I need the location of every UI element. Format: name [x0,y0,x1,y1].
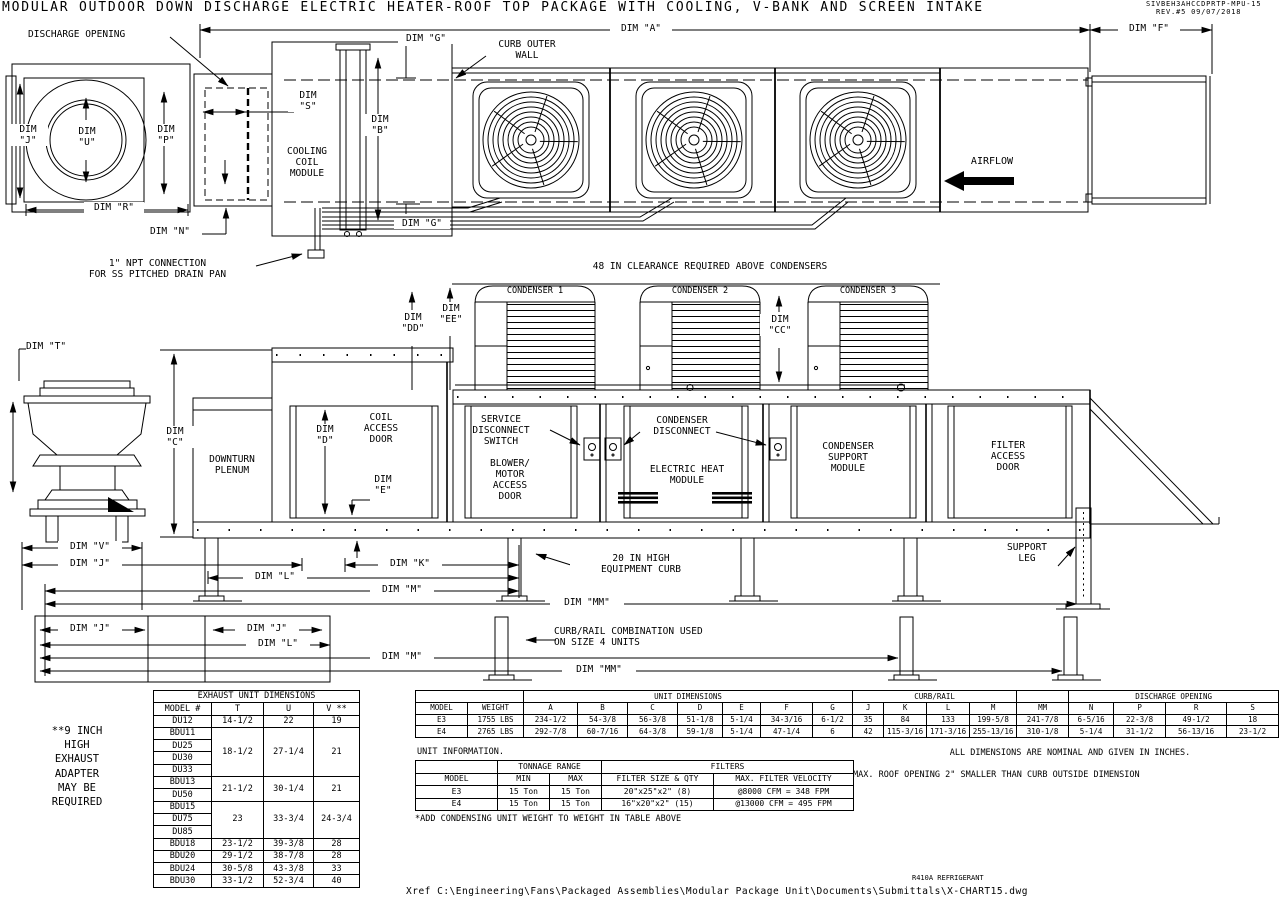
nominal-dimensions-note: ALL DIMENSIONS ARE NOMINAL AND GIVEN IN … [900,749,1240,759]
condenser-fan-icon [636,82,752,198]
exhaust-unit-dimensions-table: EXHAUST UNIT DIMENSIONSMODEL #TUV **DU12… [153,690,360,888]
dim-a-label: DIM "A" [610,23,672,34]
clearance-note: 48 IN CLEARANCE REQUIRED ABOVE CONDENSER… [530,261,890,272]
dim-k-label: DIM "K" [378,558,442,569]
dim-r-label: DIM "R" [84,202,144,213]
dim-g-bottom-label: DIM "G" [394,218,450,229]
condenser-2-label: CONDENSER 2 [640,287,760,297]
equipment-curb-note: 20 IN HIGH EQUIPMENT CURB [570,553,712,575]
add-weight-note: *ADD CONDENSING UNIT WEIGHT TO WEIGHT IN… [415,815,745,825]
exhaust-adapter-note: **9 INCH HIGH EXHAUST ADAPTER MAY BE REQ… [8,724,146,809]
dim-l-row1-label: DIM "L" [243,571,307,582]
dim-t-label: DIM "T" [26,341,90,352]
cad-submittal-sheet: MODULAR OUTDOOR DOWN DISCHARGE ELECTRIC … [0,0,1280,898]
downturn-plenum-label: DOWNTURN PLENUM [192,454,272,476]
dim-j-row1-label: DIM "J" [58,558,122,569]
curb-outer-wall-label: CURB OUTER WALL [482,39,572,61]
condenser-fan-icon [473,82,589,198]
condenser-2-shape [640,286,760,390]
dim-d-label: DIM "D" [306,424,344,446]
dim-m-row2-label: DIM "M" [370,651,434,662]
dim-mm-row2-label: DIM "MM" [562,664,636,675]
blower-motor-door-label: BLOWER/ MOTOR ACCESS DOOR [466,458,554,502]
refrigerant-label: R410A REFRIGERANT [912,874,1042,882]
airflow-arrow-icon [944,171,1014,191]
dim-m-row1-label: DIM "M" [370,584,434,595]
dim-cc-label: DIM "CC" [760,314,800,336]
support-leg-label: SUPPORT LEG [994,542,1060,564]
discharge-opening-label: DISCHARGE OPENING [28,29,180,40]
dim-ee-label: DIM "EE" [432,303,470,325]
condenser-1-shape [475,286,595,390]
doc-number: SIVBEH3AHCCDPRTP-MPU-15 [1146,0,1278,8]
dim-dd-label: DIM "DD" [394,312,432,334]
curb-rail-note: CURB/RAIL COMBINATION USED ON SIZE 4 UNI… [554,626,766,648]
tonnage-filters-table: TONNAGE RANGEFILTERSMODELMINMAXFILTER SI… [415,760,854,811]
condenser-disconnect-label: CONDENSER DISCONNECT [628,415,736,437]
dim-n-label: DIM "N" [140,226,200,237]
dim-f-label: DIM "F" [1118,23,1180,34]
filter-access-door-label: FILTER ACCESS DOOR [970,440,1046,473]
condenser-fan-icon [800,82,916,198]
condenser-support-module-label: CONDENSER SUPPORT MODULE [792,441,904,474]
condenser-elevation [412,284,940,391]
revision: REV.#5 09/07/2018 [1156,8,1280,16]
condenser-3-shape [808,286,928,390]
dimension-rows [22,541,1101,682]
cooling-coil-module-label: COOLING COIL MODULE [275,146,339,179]
dim-mm-row1-label: DIM "MM" [550,597,624,608]
electric-heat-module-label: ELECTRIC HEAT MODULE [620,464,754,486]
dim-j-topview-label: DIM "J" [8,124,48,146]
npt-connection-note: 1" NPT CONNECTION FOR SS PITCHED DRAIN P… [50,258,265,280]
dim-b-label: DIM "B" [362,114,398,136]
coil-access-door-label: COIL ACCESS DOOR [346,412,416,445]
unit-dimensions-table: UNIT DIMENSIONSCURB/RAILDISCHARGE OPENIN… [415,690,1279,738]
page-title: MODULAR OUTDOOR DOWN DISCHARGE ELECTRIC … [2,0,1152,15]
dim-v-label: DIM "V" [58,541,122,552]
airflow-label: AIRFLOW [944,156,1040,168]
dim-s-label: DIM "S" [288,90,328,112]
dim-p-label: DIM "P" [148,124,184,146]
unit-information-label: UNIT INFORMATION. [417,748,557,758]
dim-l-row2-label: DIM "L" [246,638,310,649]
dim-j-row2a-label: DIM "J" [58,623,122,634]
dim-j-row2b-label: DIM "J" [235,623,299,634]
dim-c-label: DIM "C" [156,426,194,448]
dim-g-top-label: DIM "G" [398,33,454,44]
condenser-1-label: CONDENSER 1 [475,287,595,297]
roof-opening-note: MAX. ROOF OPENING 2" SMALLER THAN CURB O… [853,771,1243,781]
dim-e-label: DIM "E" [364,474,402,496]
service-disconnect-label: SERVICE DISCONNECT SWITCH [450,414,552,447]
dim-u-label: DIM "U" [64,126,110,148]
xref-path: Xref C:\Engineering\Fans\Packaged Assemb… [406,886,1106,897]
condenser-3-label: CONDENSER 3 [808,287,928,297]
electric-heat-louvers-icon [618,492,752,504]
